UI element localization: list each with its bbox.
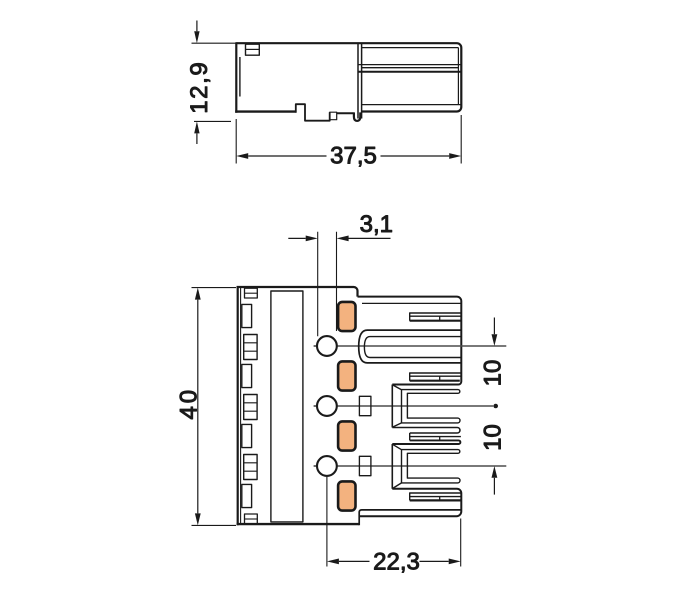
svg-text:37,5: 37,5 [330,142,377,169]
svg-text:10: 10 [480,360,507,387]
svg-text:10: 10 [480,424,507,451]
svg-text:40: 40 [176,387,203,420]
svg-text:3,1: 3,1 [360,211,393,238]
svg-text:22,3: 22,3 [373,548,420,575]
svg-text:12,9: 12,9 [186,61,213,114]
